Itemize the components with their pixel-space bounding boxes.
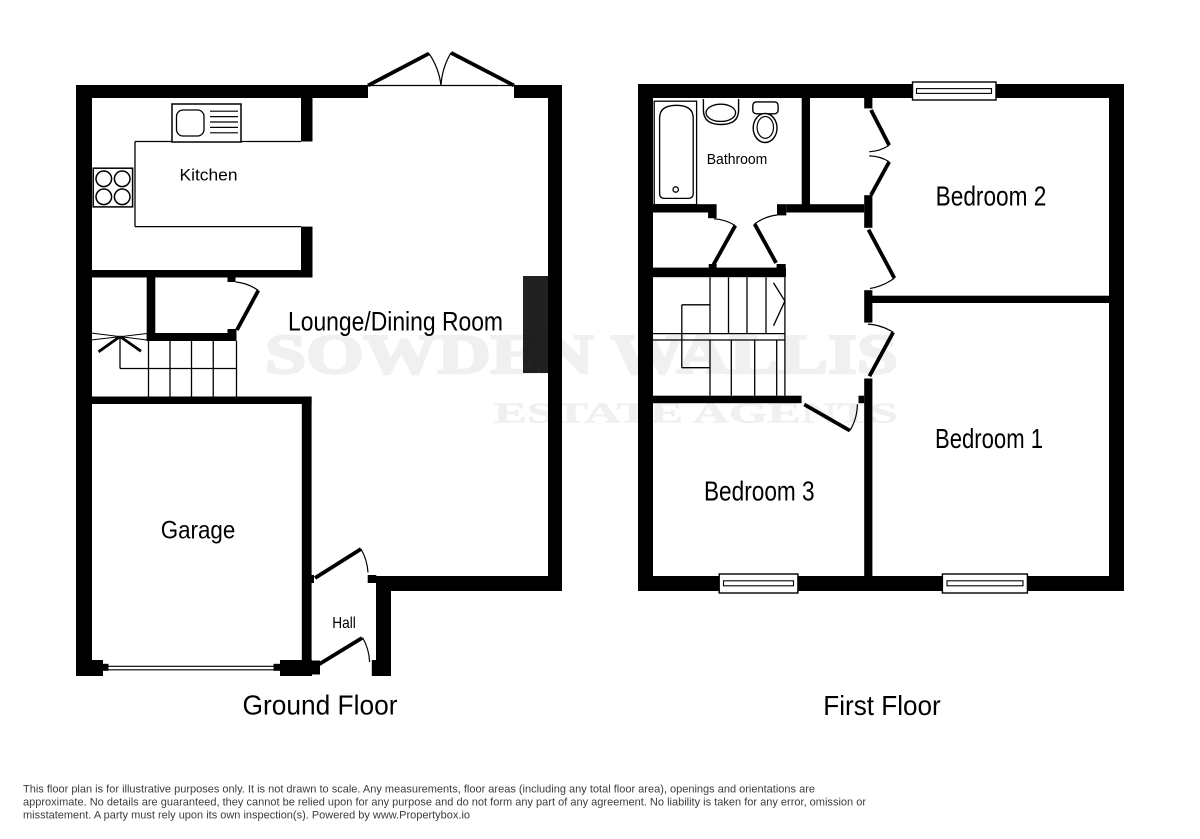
svg-text:Lounge/Dining Room: Lounge/Dining Room	[288, 306, 503, 336]
svg-text:Hall: Hall	[332, 615, 356, 632]
svg-text:misstatement. A party must rel: misstatement. A party must rely upon its…	[23, 810, 470, 822]
svg-text:approximate. No details are gu: approximate. No details are guaranteed, …	[23, 797, 866, 809]
svg-text:Garage: Garage	[161, 516, 236, 544]
svg-text:This floor plan is for illustr: This floor plan is for illustrative purp…	[23, 784, 815, 796]
svg-text:Kitchen: Kitchen	[180, 166, 238, 185]
svg-text:First Floor: First Floor	[823, 690, 941, 721]
svg-text:Bedroom 1: Bedroom 1	[935, 423, 1043, 454]
svg-text:Bedroom 2: Bedroom 2	[936, 181, 1047, 212]
svg-text:Bedroom 3: Bedroom 3	[704, 475, 815, 506]
svg-text:Ground Floor: Ground Floor	[243, 690, 398, 721]
svg-text:Bathroom: Bathroom	[707, 152, 768, 168]
